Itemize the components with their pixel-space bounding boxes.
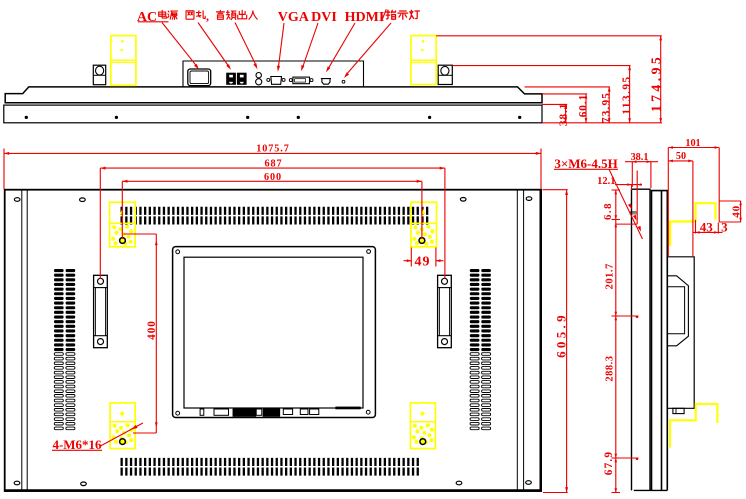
svg-text:,: , [206,9,209,23]
svg-text:3: 3 [721,220,728,235]
svg-text:67.9: 67.9 [603,451,615,475]
svg-text:38.1: 38.1 [558,103,570,127]
svg-text:1075.7: 1075.7 [256,144,289,155]
svg-text:113.95: 113.95 [621,75,633,114]
svg-text:50: 50 [676,151,686,162]
svg-text:40: 40 [730,205,742,218]
svg-text:73.95: 73.95 [601,92,613,123]
svg-text:VGA: VGA [278,10,310,25]
svg-text:174.95: 174.95 [648,54,663,112]
svg-text:6.8: 6.8 [602,202,614,220]
svg-text:201.7: 201.7 [605,263,616,289]
svg-text:288.3: 288.3 [605,355,616,381]
svg-text:101: 101 [685,138,700,149]
svg-text:12.1: 12.1 [597,176,615,187]
svg-text:687: 687 [265,158,283,169]
svg-text:DVI: DVI [311,10,337,25]
svg-text:HDMI: HDMI [345,10,385,25]
svg-text:49: 49 [415,254,431,269]
svg-text:400: 400 [146,320,158,340]
svg-text:600: 600 [264,172,282,183]
svg-text:605.9: 605.9 [553,312,568,358]
svg-text:60.1: 60.1 [578,94,590,118]
svg-text:38.1: 38.1 [631,152,649,163]
svg-text:AC: AC [137,10,157,25]
svg-text:43: 43 [700,220,714,235]
